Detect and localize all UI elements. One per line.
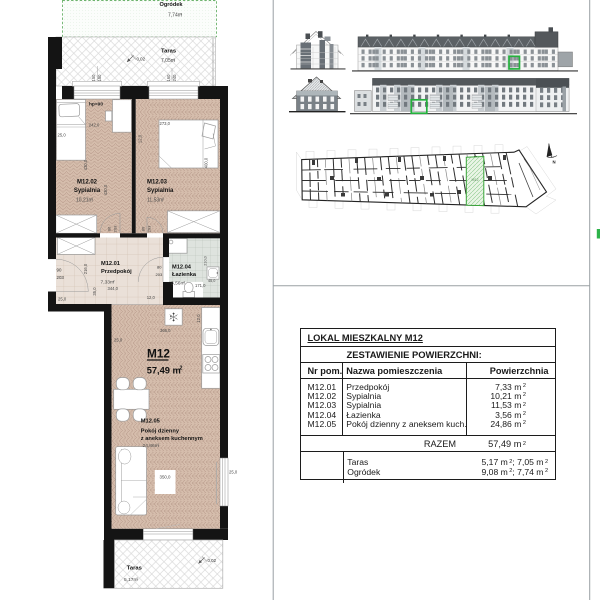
svg-text:366,0: 366,0 <box>160 328 171 333</box>
svg-text:210,0: 210,0 <box>204 256 208 266</box>
svg-text:M12: M12 <box>147 347 170 361</box>
svg-text:25,0: 25,0 <box>229 470 238 475</box>
svg-text:Pokój dzienny: Pokój dzienny <box>141 429 180 435</box>
svg-text:80: 80 <box>157 265 162 270</box>
svg-text:hp<90: hp<90 <box>89 101 103 107</box>
svg-text:203: 203 <box>57 275 65 280</box>
svg-text:25,0: 25,0 <box>58 132 67 137</box>
svg-text:25,0: 25,0 <box>58 297 67 302</box>
svg-text:430,0: 430,0 <box>103 184 108 195</box>
svg-text:216,0: 216,0 <box>83 263 88 274</box>
svg-text:11,53m: 11,53m <box>147 197 163 203</box>
svg-text:z aneksem kuchennym: z aneksem kuchennym <box>141 436 203 442</box>
svg-text:M12: M12 <box>472 178 479 182</box>
svg-text:430,0: 430,0 <box>83 159 88 170</box>
svg-text:80: 80 <box>107 226 112 231</box>
svg-text:90: 90 <box>57 268 62 273</box>
svg-text:10,21m: 10,21m <box>76 197 93 203</box>
svg-text:240: 240 <box>172 74 177 82</box>
svg-text:2: 2 <box>180 366 183 372</box>
svg-text:12,0: 12,0 <box>147 295 156 300</box>
svg-text:Taras: Taras <box>161 49 176 55</box>
svg-text:M12.05: M12.05 <box>141 419 160 425</box>
svg-text:0,02: 0,02 <box>208 558 217 563</box>
svg-text:150: 150 <box>91 74 96 82</box>
svg-text:45,0: 45,0 <box>208 279 215 283</box>
svg-text:Taras: Taras <box>127 566 142 572</box>
svg-text:Sypialnia: Sypialnia <box>74 188 101 194</box>
svg-text:242,0: 242,0 <box>89 122 100 127</box>
svg-text:M12.01: M12.01 <box>101 261 120 267</box>
svg-text:203: 203 <box>156 272 163 277</box>
svg-text:160: 160 <box>166 74 171 82</box>
svg-text:350,0: 350,0 <box>160 475 172 480</box>
svg-text:Sypialnia: Sypialnia <box>147 188 174 194</box>
svg-text:203: 203 <box>113 225 118 232</box>
svg-text:57,49 m: 57,49 m <box>147 366 181 376</box>
svg-text:Przedpokój: Przedpokój <box>101 269 132 275</box>
svg-text:25,0: 25,0 <box>114 338 123 343</box>
svg-text:12,0: 12,0 <box>196 314 201 323</box>
svg-text:M12.04: M12.04 <box>172 265 192 271</box>
svg-text:24,86m: 24,86m <box>143 443 159 449</box>
svg-text:344,0: 344,0 <box>108 286 119 291</box>
svg-text:171,0: 171,0 <box>195 283 206 288</box>
svg-text:150: 150 <box>97 74 102 82</box>
svg-text:Ogródek: Ogródek <box>159 2 183 8</box>
svg-text:80: 80 <box>141 226 146 231</box>
svg-text:0,02: 0,02 <box>137 57 146 62</box>
svg-text:35,0: 35,0 <box>92 287 97 296</box>
svg-text:N: N <box>553 160 556 165</box>
svg-text:M12.02: M12.02 <box>77 180 98 186</box>
svg-text:12,0: 12,0 <box>138 134 143 143</box>
svg-text:Łazienka: Łazienka <box>172 272 197 278</box>
svg-text:203: 203 <box>147 225 152 232</box>
svg-text:M12.03: M12.03 <box>147 180 168 186</box>
svg-text:400,0: 400,0 <box>204 157 209 168</box>
svg-text:273,0: 273,0 <box>160 121 171 126</box>
